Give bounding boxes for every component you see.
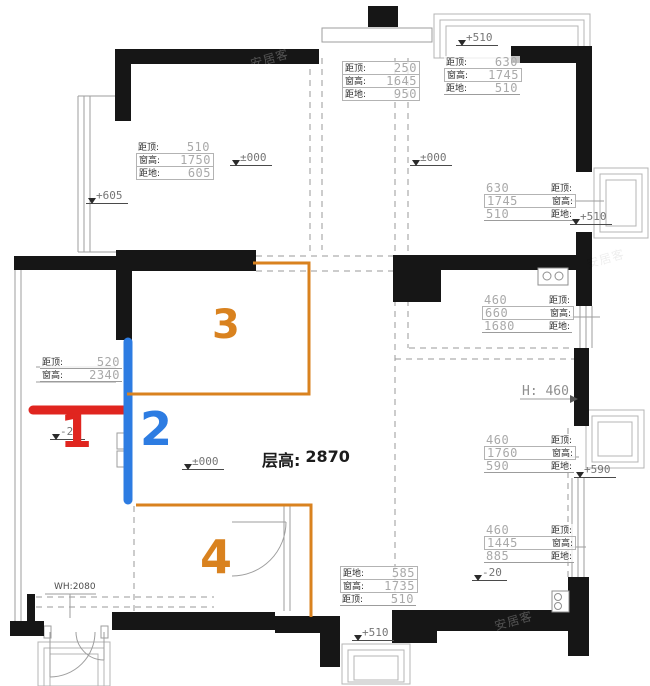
elevation-text: ±000 <box>182 456 224 470</box>
dim-row: 距地:585 <box>340 566 418 580</box>
dim-row: 1445窗高: <box>484 536 576 550</box>
dim-label: 距顶: <box>345 64 366 74</box>
dim-label: 距顶: <box>551 184 572 194</box>
dim-value: 460 <box>486 435 509 446</box>
elevation-marker-south-bay: +510 <box>352 621 394 635</box>
dim-label: 距顶: <box>342 595 363 605</box>
floor-height-value: 2870 <box>305 447 350 471</box>
dim-group-west: 距顶:520 窗高:2340 <box>40 356 122 382</box>
dim-value: 630 <box>495 57 518 68</box>
bay-window-south-west <box>38 642 110 686</box>
dim-value: 520 <box>97 357 120 368</box>
floor-height-caption: 层高: <box>262 447 300 471</box>
dim-row: 510距地: <box>484 208 574 221</box>
dim-label: 窗高: <box>345 77 366 87</box>
dim-value: 510 <box>187 142 210 153</box>
dim-row: 590距地: <box>484 460 574 473</box>
dim-row: 窗高:1750 <box>136 153 214 167</box>
elevation-marker-east-lower: +590 <box>574 458 616 472</box>
dim-label: 距顶: <box>551 526 572 536</box>
dim-label: 距顶: <box>138 143 159 153</box>
dim-group-south-middle: 距地:585 窗高:1735 距顶:510 <box>340 567 418 606</box>
dim-value: 460 <box>484 295 507 306</box>
dim-value: 1680 <box>484 321 515 332</box>
zone-number-1: 1 <box>60 408 92 454</box>
zone-number-3: 3 <box>212 305 240 345</box>
dim-value: 630 <box>486 183 509 194</box>
dim-value: 510 <box>495 83 518 94</box>
elevation-text: ±000 <box>230 152 272 166</box>
floor-plan: 安居客 安居客 安居客 距顶:510 窗高:1750 距地:605 距顶:250… <box>0 0 650 686</box>
window-east-upper <box>580 306 592 348</box>
dim-value: 1745 <box>487 196 518 207</box>
elevation-text: +605 <box>86 190 128 204</box>
dim-label: 窗高: <box>42 371 63 381</box>
dim-group-east-2: 460距顶: 1760窗高: 590距地: <box>484 434 576 473</box>
dim-label: 距地: <box>551 462 572 472</box>
elevation-text: +510 <box>352 627 394 641</box>
dim-group-east-1: 460距顶: 660窗高: 1680距地: <box>482 294 574 333</box>
dim-value: 510 <box>486 209 509 220</box>
dim-value: 1735 <box>384 581 415 592</box>
dim-group-top-middle: 距顶:250 窗高:1645 距地:950 <box>342 62 420 101</box>
dim-row: 距顶:250 <box>342 61 420 75</box>
dim-value: 1445 <box>487 538 518 549</box>
dim-label: 距顶: <box>549 296 570 306</box>
dim-group-east-upper: 630距顶: 1745窗高: 510距地: <box>484 182 576 221</box>
elevation-text: +510 <box>456 32 498 46</box>
elevation-marker-center: ±000 <box>182 450 224 464</box>
floor-height-label: 层高: 2870 <box>262 447 350 471</box>
bay-window-south <box>342 644 410 684</box>
zone-number-4: 4 <box>200 534 232 580</box>
dim-value: 1750 <box>180 155 211 166</box>
dim-group-east-3: 460距顶: 1445窗高: 885距地: <box>484 524 576 563</box>
door-wh-label: WH:2080 <box>54 582 96 592</box>
dim-row: 窗高:2340 <box>40 369 122 382</box>
dim-label: 窗高: <box>447 71 468 81</box>
dim-label: 距地: <box>446 84 467 94</box>
dim-row: 窗高:1735 <box>340 579 418 593</box>
elevation-marker-west-upper: +605 <box>86 184 128 198</box>
elevation-marker-top-right-bay: +510 <box>456 26 498 40</box>
elevation-text: ±000 <box>410 152 452 166</box>
dim-row: 1745窗高: <box>484 194 576 208</box>
dim-row: 距地:510 <box>444 82 520 95</box>
height-460-label: H: 460 <box>522 384 569 399</box>
dim-value: 1760 <box>487 448 518 459</box>
dim-label: 距地: <box>139 169 160 179</box>
elevation-text: -20 <box>472 567 507 581</box>
dim-label: 距顶: <box>446 58 467 68</box>
dim-label: 距顶: <box>42 358 63 368</box>
elevation-marker-top-right-room: ±000 <box>410 146 452 160</box>
dim-row: 窗高:1745 <box>444 68 522 82</box>
zone-number-2: 2 <box>140 406 172 452</box>
elevation-text: +590 <box>574 464 616 478</box>
dim-value: 950 <box>394 89 417 100</box>
dim-value: 605 <box>188 168 211 179</box>
elevation-text: +510 <box>570 211 612 225</box>
dim-row: 距地:950 <box>342 87 420 101</box>
dim-value: 590 <box>486 461 509 472</box>
dim-group-top-left: 距顶:510 窗高:1750 距地:605 <box>136 141 214 180</box>
dim-value: 1745 <box>488 70 519 81</box>
dim-value: 585 <box>392 568 415 579</box>
dim-label: 距地: <box>345 90 366 100</box>
dim-value: 1645 <box>386 76 417 87</box>
dim-row: 距顶:510 <box>340 593 416 606</box>
dim-label: 窗高: <box>552 449 573 459</box>
window-west-top <box>78 96 116 252</box>
dim-row: 窗高:1645 <box>342 74 420 88</box>
dim-label: 窗高: <box>552 539 573 549</box>
dim-label: 距地: <box>343 569 364 579</box>
dim-value: 460 <box>486 525 509 536</box>
dim-label: 距地: <box>551 210 572 220</box>
dim-label: 距顶: <box>551 436 572 446</box>
dim-label: 距地: <box>551 552 572 562</box>
door-swing-room4 <box>232 522 286 576</box>
dim-group-top-right: 距顶:630 窗高:1745 距地:510 <box>444 56 522 95</box>
elevation-marker-top-left: ±000 <box>230 146 272 160</box>
dim-value: 250 <box>394 63 417 74</box>
dim-value: 2340 <box>89 370 120 381</box>
dim-row: 660窗高: <box>482 306 574 320</box>
dim-value: 660 <box>485 308 508 319</box>
dim-label: 窗高: <box>139 156 160 166</box>
bay-window-east-upper <box>594 168 648 238</box>
dim-row: 距地:605 <box>136 166 214 180</box>
dim-value: 510 <box>391 594 414 605</box>
dim-row: 1760窗高: <box>484 446 576 460</box>
dim-label: 距地: <box>549 322 570 332</box>
elevation-marker-east-mid: +510 <box>570 205 612 219</box>
dim-label: 窗高: <box>550 309 571 319</box>
elevation-marker-south-east-neg: -20 <box>472 561 507 575</box>
floor-plan-drawing <box>0 0 650 686</box>
dim-row: 1680距地: <box>482 320 572 333</box>
dim-label: 窗高: <box>343 582 364 592</box>
